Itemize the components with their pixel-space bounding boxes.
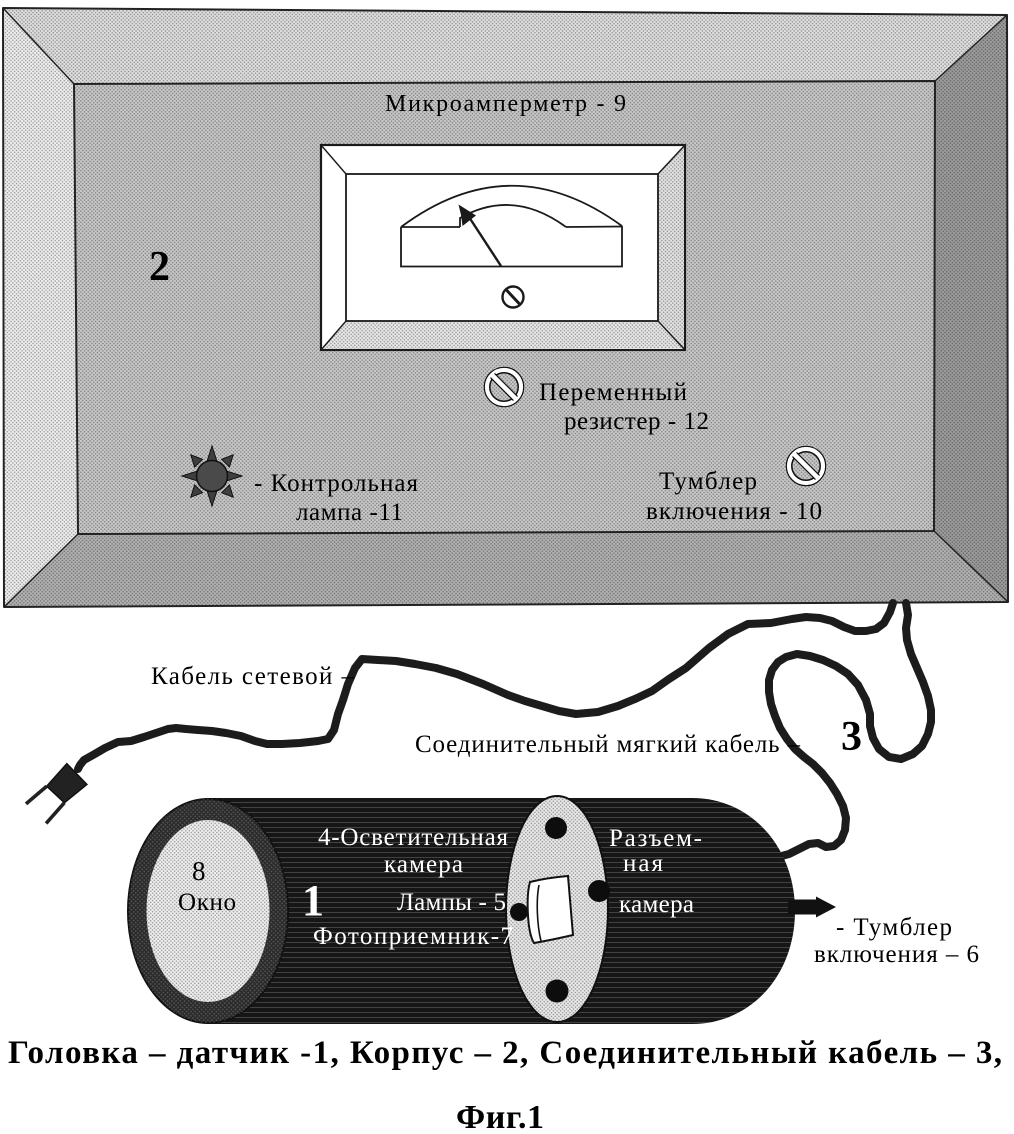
svg-text:Переменный: Переменный <box>539 379 687 406</box>
svg-text:2: 2 <box>149 244 170 290</box>
svg-text:лампа -11: лампа -11 <box>296 499 403 526</box>
svg-text:8: 8 <box>192 856 206 886</box>
svg-text:4-Осветительная: 4-Осветительная <box>318 824 509 851</box>
svg-text:Соединительный мягкий кабель –: Соединительный мягкий кабель – <box>415 731 801 758</box>
svg-text:- Контрольная: - Контрольная <box>254 470 419 497</box>
svg-text:включения - 10: включения - 10 <box>646 498 822 525</box>
svg-text:3: 3 <box>841 714 862 760</box>
svg-text:камера: камера <box>619 891 694 918</box>
svg-text:Окно: Окно <box>178 889 236 916</box>
svg-text:ная: ная <box>623 850 664 877</box>
svg-text:резистер - 12: резистер - 12 <box>564 408 709 435</box>
svg-text:Тумблер: Тумблер <box>659 468 757 495</box>
svg-text:Головка – датчик -1, Корпус –: Головка – датчик -1, Корпус – 2, Соедини… <box>8 1035 1002 1071</box>
svg-text:Лампы - 5: Лампы - 5 <box>397 889 506 916</box>
svg-text:- Тумблер: - Тумблер <box>836 914 952 941</box>
svg-text:Кабель сетевой –: Кабель сетевой – <box>151 663 355 690</box>
svg-text:Фиг.1: Фиг.1 <box>456 1099 544 1134</box>
svg-text:1: 1 <box>302 876 324 925</box>
svg-text:включения – 6: включения – 6 <box>814 941 979 968</box>
svg-text:Фотоприемник-7: Фотоприемник-7 <box>313 923 513 950</box>
